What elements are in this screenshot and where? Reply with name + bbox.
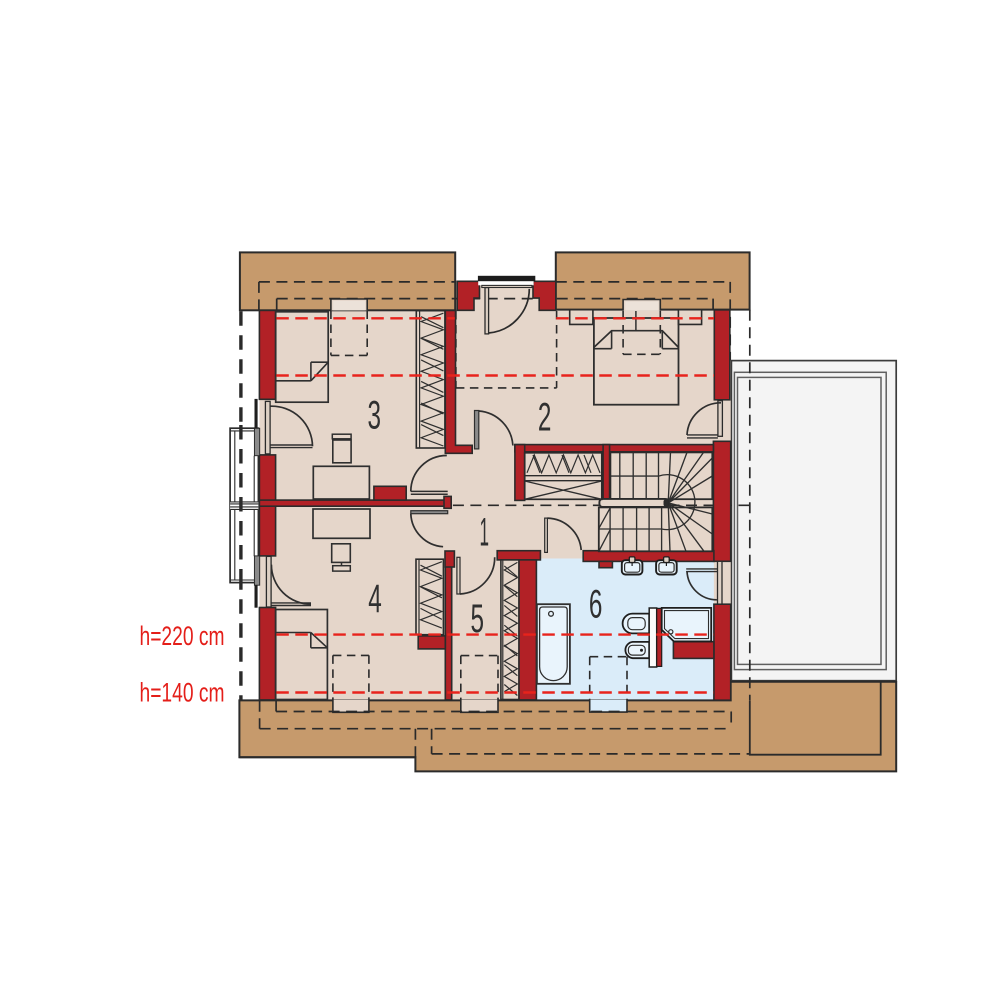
svg-text:h=220 cm: h=220 cm [140,621,225,651]
svg-text:3: 3 [367,394,381,438]
svg-text:1: 1 [480,511,490,555]
svg-text:h=140 cm: h=140 cm [140,677,225,707]
svg-text:6: 6 [589,583,603,627]
svg-text:4: 4 [368,577,382,621]
svg-text:5: 5 [470,597,484,641]
svg-text:2: 2 [538,396,552,440]
